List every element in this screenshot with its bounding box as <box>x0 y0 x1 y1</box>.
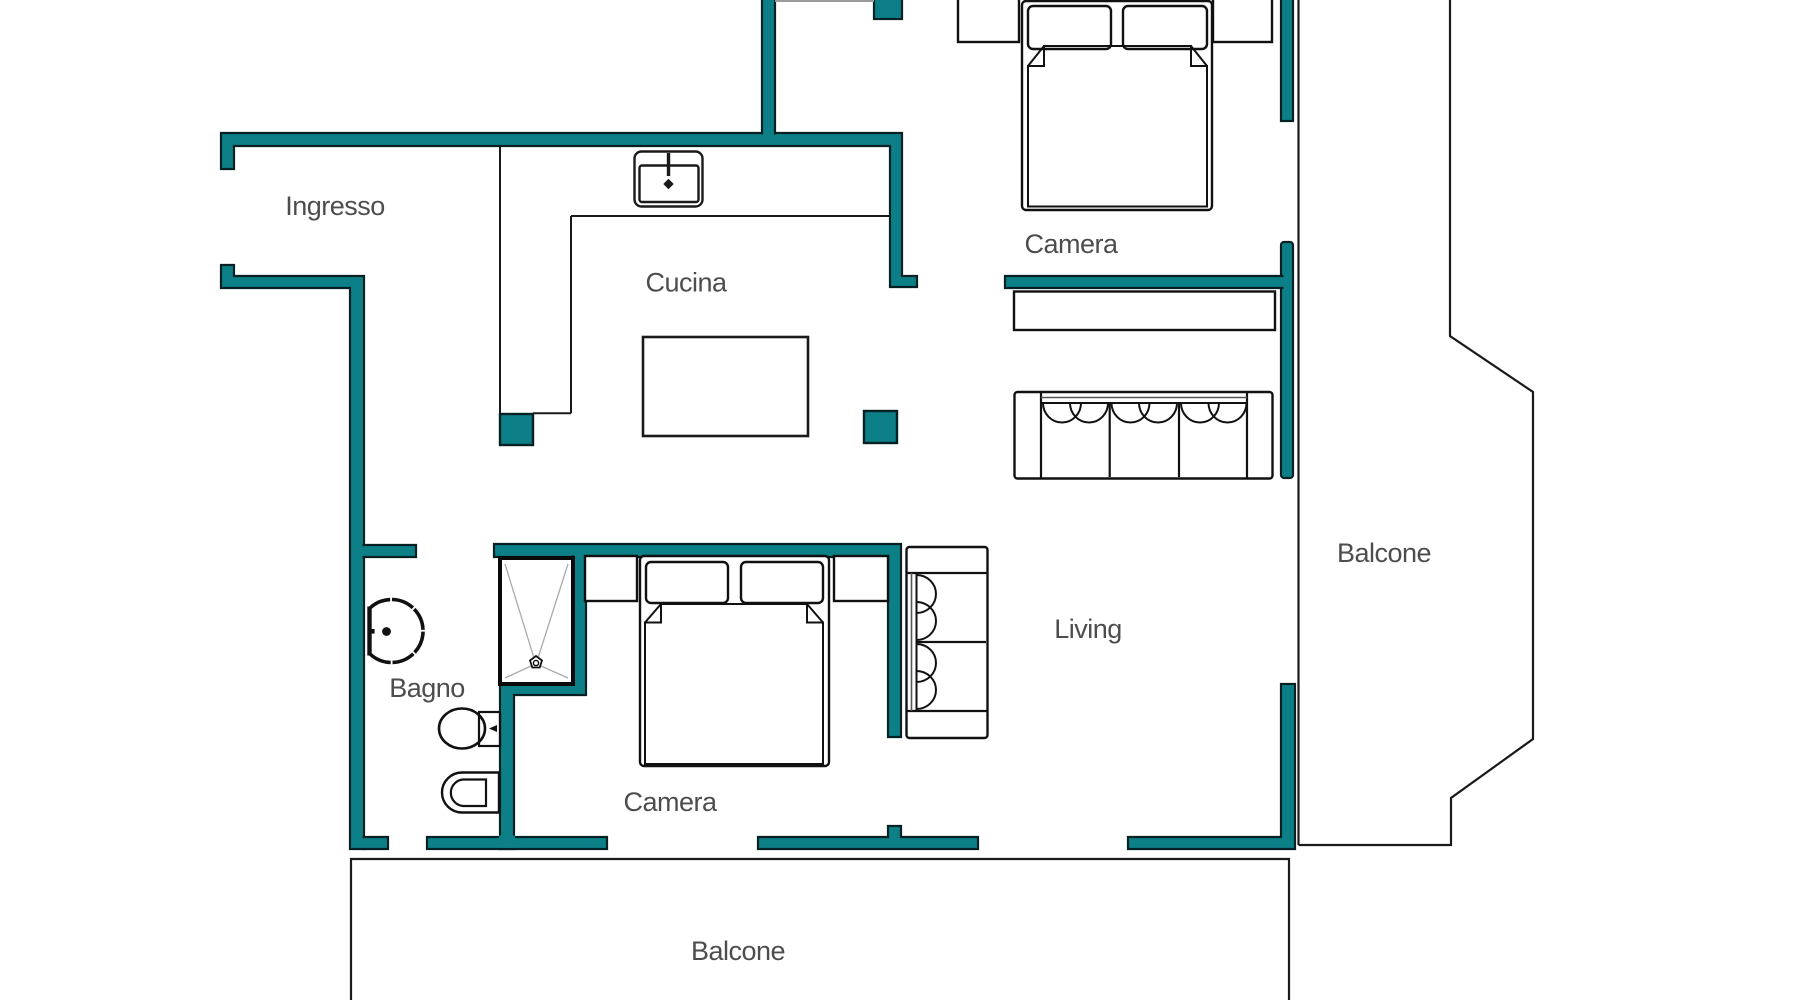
svg-text:Cucina: Cucina <box>645 268 728 298</box>
svg-text:Balcone: Balcone <box>691 936 785 966</box>
svg-text:Bagno: Bagno <box>389 673 465 703</box>
svg-text:Camera: Camera <box>1024 229 1119 259</box>
svg-text:Ingresso: Ingresso <box>285 191 385 221</box>
svg-text:Camera: Camera <box>623 787 718 817</box>
svg-text:Living: Living <box>1054 614 1122 644</box>
svg-text:Balcone: Balcone <box>1337 538 1431 568</box>
